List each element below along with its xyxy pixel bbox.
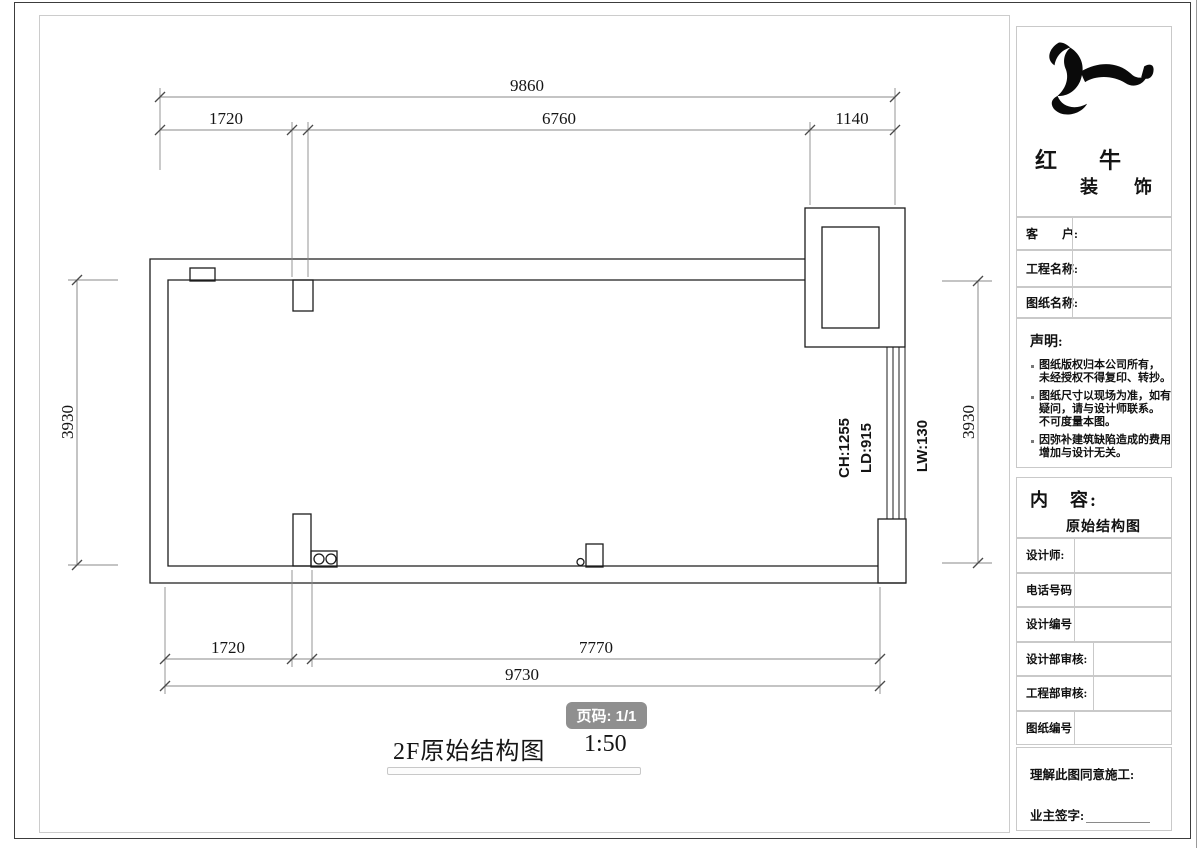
- page-number-badge: 页码: 1/1: [566, 702, 647, 729]
- field-row-design-no: 设计编号: [1016, 607, 1172, 642]
- sheet-title: 2F原始结构图: [393, 731, 545, 766]
- title-underline-bar: [387, 767, 641, 775]
- bullet-icon: [1031, 365, 1034, 368]
- window-annotations: CH:1255 LD:915 LW:130: [836, 418, 931, 478]
- construction-agreement-label: 理解此图同意施工:: [1030, 764, 1171, 783]
- bay-box-outer: [805, 208, 905, 347]
- dimension-lines: [77, 97, 978, 686]
- statement-heading: 声明:: [1030, 331, 1163, 351]
- field-row-designer: 设计师:: [1016, 538, 1172, 573]
- window-symbol: [887, 347, 905, 519]
- brand-name-line1: 红 牛: [1035, 143, 1131, 175]
- dim-top-total: 9860: [510, 76, 544, 95]
- field-row-label: 工程部审核:: [1017, 685, 1087, 701]
- statement-box: 声明: 图纸版权归本公司所有， 未经授权不得复印、转抄。 图纸尺寸以现场为准，如…: [1016, 318, 1172, 468]
- statement-line: 未经授权不得复印、转抄。: [1030, 372, 1163, 385]
- drawing-sheet: { "page": { "title": "2F原始结构图", "scale_l…: [0, 0, 1200, 848]
- dimension-texts: 9860 1720 6760 1140 1720 7770 9730 3930 …: [58, 76, 978, 684]
- field-row-label: 设计部审核:: [1017, 651, 1087, 667]
- field-row-label: 图纸编号: [1017, 720, 1072, 736]
- owner-signature-label: 业主签字:: [1030, 805, 1084, 824]
- info-row-customer: 客 户:: [1016, 217, 1172, 250]
- info-row-label: 客 户:: [1017, 225, 1078, 242]
- sheet-scale: 1:50: [584, 731, 627, 758]
- dim-bottom-seg2: 7770: [579, 638, 613, 657]
- dimension-ticks: [72, 92, 983, 691]
- dim-bottom-seg1: 1720: [211, 638, 245, 657]
- fixture-dot: [577, 559, 584, 566]
- brand-name-line2: 装 饰: [1080, 173, 1161, 199]
- dim-bottom-total: 9730: [505, 665, 539, 684]
- content-heading: 内 容:: [1030, 486, 1171, 512]
- field-row-phone: 电话号码: [1016, 573, 1172, 608]
- bottom-wall-stub: [293, 514, 311, 566]
- statement-line: 疑问，请与设计师联系。: [1030, 403, 1163, 416]
- info-row-drawing-name: 图纸名称:: [1016, 287, 1172, 318]
- dim-left-side: 3930: [58, 405, 77, 439]
- cell-divider: [1093, 677, 1094, 710]
- bullet-icon: [1031, 396, 1034, 399]
- stove-burner-right: [326, 554, 336, 564]
- statement-line: 图纸尺寸以现场为准，如有: [1030, 390, 1163, 403]
- bull-logo-icon: [1029, 35, 1157, 143]
- signature-box: 理解此图同意施工: 业主签字:: [1016, 747, 1172, 831]
- wall-inner: [168, 280, 878, 566]
- field-row-label: 电话号码: [1017, 582, 1072, 598]
- statement-line: 图纸版权归本公司所有，: [1030, 359, 1163, 372]
- content-value: 原始结构图: [1066, 516, 1171, 536]
- field-row-label: 设计编号: [1017, 616, 1072, 632]
- extension-lines: [68, 88, 992, 694]
- annotation-lw: LW:130: [914, 420, 931, 472]
- info-row-label: 图纸名称:: [1017, 294, 1078, 311]
- info-row-project-name: 工程名称:: [1016, 250, 1172, 287]
- bay-box-inner: [822, 227, 879, 328]
- right-column: [878, 519, 906, 583]
- cell-divider: [1072, 218, 1073, 249]
- annotation-ch: CH:1255: [836, 418, 853, 478]
- annotation-ld: LD:915: [858, 423, 875, 473]
- dim-top-seg3: 1140: [835, 109, 868, 128]
- dim-right-side: 3930: [959, 405, 978, 439]
- flue-box: [190, 268, 215, 281]
- field-row-design-review: 设计部审核:: [1016, 642, 1172, 677]
- field-row-label: 设计师:: [1017, 547, 1064, 563]
- field-row-engineering-review: 工程部审核:: [1016, 676, 1172, 711]
- statement-line: 不可度量本图。: [1030, 416, 1163, 429]
- cell-divider: [1093, 643, 1094, 676]
- walls: [150, 208, 906, 583]
- cell-divider: [1074, 574, 1075, 607]
- wall-outer: [150, 259, 906, 583]
- fixture-box: [586, 544, 603, 567]
- logo-box: 红 牛 装 饰: [1016, 26, 1172, 217]
- top-wall-stub: [293, 280, 313, 311]
- dim-top-seg2: 6760: [542, 109, 576, 128]
- info-row-label: 工程名称:: [1017, 260, 1078, 277]
- cell-divider: [1074, 712, 1075, 745]
- signature-underline: [1086, 822, 1150, 823]
- cell-divider: [1074, 608, 1075, 641]
- statement-line: 增加与设计无关。: [1030, 447, 1163, 460]
- stove-burner-left: [314, 554, 324, 564]
- cell-divider: [1072, 288, 1073, 317]
- field-row-drawing-no: 图纸编号: [1016, 711, 1172, 746]
- bullet-icon: [1031, 440, 1034, 443]
- statement-line: 因弥补建筑缺陷造成的费用: [1030, 434, 1163, 447]
- cell-divider: [1074, 539, 1075, 572]
- dim-top-seg1: 1720: [209, 109, 243, 128]
- content-box: 内 容: 原始结构图: [1016, 477, 1172, 538]
- cell-divider: [1072, 251, 1073, 286]
